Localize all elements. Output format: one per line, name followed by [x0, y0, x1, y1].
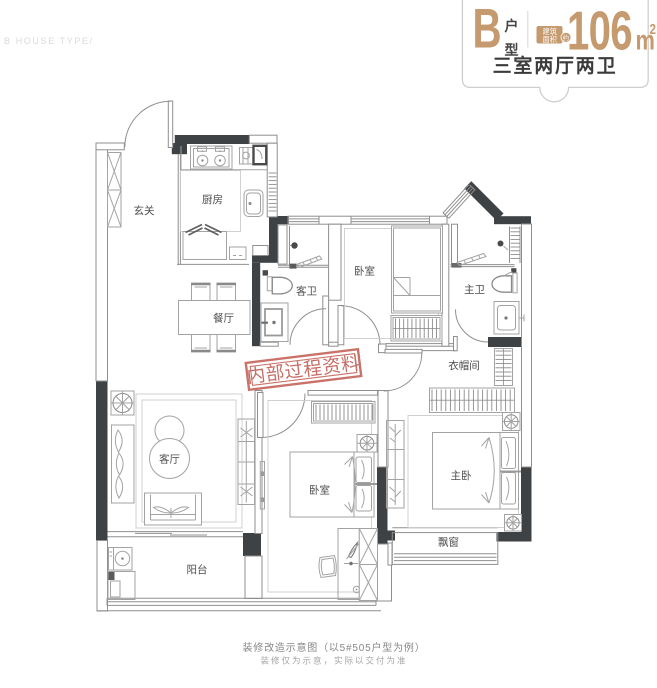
svg-text:客卫: 客卫: [296, 285, 317, 298]
svg-text:装修改造示意图（以5#505户型为例）: 装修改造示意图（以5#505户型为例）: [242, 641, 425, 654]
svg-text:三室两厅两卫: 三室两厅两卫: [493, 54, 618, 77]
svg-text:主卧: 主卧: [451, 469, 472, 482]
svg-text:阳台: 阳台: [187, 563, 208, 576]
svg-text:卧室: 卧室: [309, 484, 330, 497]
svg-text:B: B: [473, 0, 502, 60]
svg-text:玄关: 玄关: [134, 204, 155, 217]
svg-text:飘窗: 飘窗: [438, 536, 459, 549]
svg-text:客厅: 客厅: [159, 453, 180, 466]
svg-text:面积: 面积: [543, 35, 557, 44]
svg-text:户: 户: [505, 18, 519, 34]
svg-text:厨房: 厨房: [202, 193, 223, 206]
svg-text:衣帽间: 衣帽间: [448, 359, 480, 372]
svg-text:餐厅: 餐厅: [213, 312, 234, 325]
svg-text:B HOUSE TYPE/: B HOUSE TYPE/: [4, 36, 94, 46]
svg-text:装修仅为示意，实际以交付为准: 装修仅为示意，实际以交付为准: [260, 656, 407, 666]
svg-text:2: 2: [650, 21, 657, 38]
svg-text:106: 106: [567, 0, 632, 62]
svg-text:主卫: 主卫: [464, 284, 485, 296]
svg-text:卧室: 卧室: [354, 265, 375, 278]
